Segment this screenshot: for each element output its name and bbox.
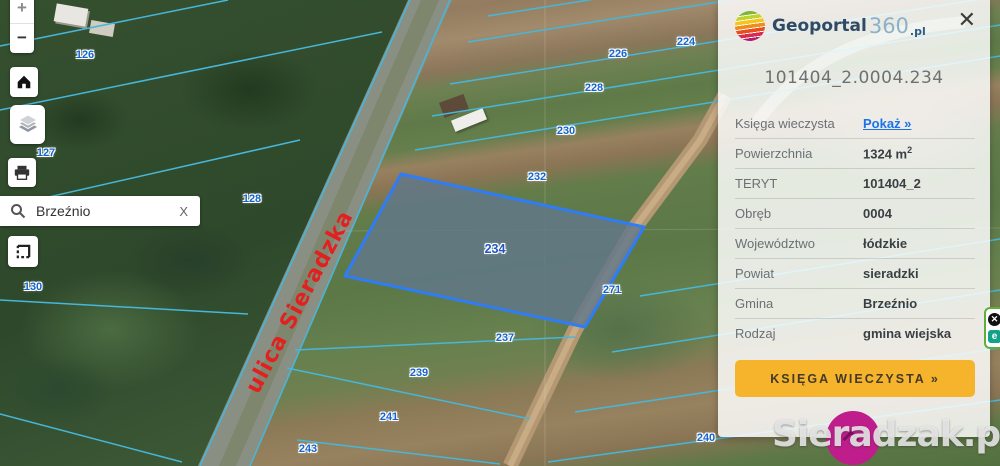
panel-row: Rodzajgmina wiejska xyxy=(735,318,975,348)
zoom-controls: + − xyxy=(10,0,34,53)
parcel-label-237[interactable]: 237 xyxy=(496,332,514,344)
parcel-label-241[interactable]: 241 xyxy=(380,411,398,423)
parcel-label-232[interactable]: 232 xyxy=(528,171,546,183)
attribute-label: Gmina xyxy=(735,296,863,311)
widget-e-icon[interactable]: e xyxy=(988,330,1000,343)
attribute-label: Księga wieczysta xyxy=(735,116,863,131)
panel-row: Księga wieczystaPokaż » xyxy=(735,108,975,138)
show-link[interactable]: Pokaż » xyxy=(863,116,911,131)
home-button[interactable] xyxy=(10,67,38,97)
parcel-label-226[interactable]: 226 xyxy=(609,48,627,60)
select-area-icon xyxy=(15,243,32,260)
parcel-label-126[interactable]: 126 xyxy=(76,49,94,61)
close-icon[interactable]: ✕ xyxy=(958,10,976,32)
globe-logo-icon xyxy=(733,9,767,43)
ksiega-wieczysta-button[interactable]: KSIĘGA WIECZYSTA » xyxy=(735,360,975,397)
search-clear-button[interactable]: X xyxy=(179,204,188,219)
panel-row: Powierzchnia1324 m2 xyxy=(735,138,975,168)
parcel-label-228[interactable]: 228 xyxy=(585,82,603,94)
printer-icon xyxy=(13,164,31,182)
parcel-label-230[interactable]: 230 xyxy=(557,125,575,137)
extension-widget: ✕ e xyxy=(984,307,1000,349)
widget-close-icon[interactable]: ✕ xyxy=(988,313,1000,326)
attribute-value: sieradzki xyxy=(863,266,919,281)
logo-text-360: 360 xyxy=(869,14,909,38)
parcel-label-128[interactable]: 128 xyxy=(243,193,261,205)
parcel-id-title: 101404_2.0004.234 xyxy=(718,68,990,88)
panel-row: TERYT101404_2 xyxy=(735,168,975,198)
parcel-label-127[interactable]: 127 xyxy=(37,147,55,159)
zoom-out-button[interactable]: − xyxy=(10,24,34,54)
logo-text: Geoportal xyxy=(772,16,867,36)
layers-button[interactable] xyxy=(10,105,45,144)
search-bar: X xyxy=(0,196,200,226)
zoom-in-button[interactable]: + xyxy=(10,0,34,24)
parcel-label-224[interactable]: 224 xyxy=(677,36,695,48)
home-icon xyxy=(15,73,33,91)
parcel-attribute-rows: Księga wieczystaPokaż »Powierzchnia1324 … xyxy=(735,108,975,348)
parcel-label-243[interactable]: 243 xyxy=(299,443,317,455)
attribute-value: 1324 m2 xyxy=(863,145,912,161)
select-area-button[interactable] xyxy=(8,236,38,267)
attribute-label: Powiat xyxy=(735,266,863,281)
attribute-value: łódzkie xyxy=(863,236,907,251)
panel-row: GminaBrzeźnio xyxy=(735,288,975,318)
attribute-value: gmina wiejska xyxy=(863,326,951,341)
parcel-label-271[interactable]: 271 xyxy=(603,284,621,296)
geoportal-logo: Geoportal 360 .pl xyxy=(735,11,926,41)
search-icon xyxy=(10,203,26,219)
attribute-label: Obręb xyxy=(735,206,863,221)
sieradzak-watermark: Sieradzak.pl xyxy=(772,414,1000,455)
logo-text-pl: .pl xyxy=(910,25,926,38)
parcel-label-234[interactable]: 234 xyxy=(485,242,506,256)
attribute-label: Powierzchnia xyxy=(735,146,863,161)
attribute-label: Rodzaj xyxy=(735,326,863,341)
parcel-label-239[interactable]: 239 xyxy=(410,367,428,379)
parcel-info-panel: Geoportal 360 .pl ✕ 101404_2.0004.234 Ks… xyxy=(718,0,990,437)
layers-icon xyxy=(16,113,40,137)
attribute-value: 0004 xyxy=(863,206,892,221)
attribute-value: 101404_2 xyxy=(863,176,921,191)
parcel-label-130[interactable]: 130 xyxy=(24,281,42,293)
panel-row: Województwołódzkie xyxy=(735,228,975,258)
parcel-label-240[interactable]: 240 xyxy=(697,432,715,444)
attribute-value: Brzeźnio xyxy=(863,296,917,311)
attribute-label: Województwo xyxy=(735,236,863,251)
attribute-label: TERYT xyxy=(735,176,863,191)
panel-row: Powiatsieradzki xyxy=(735,258,975,288)
geoportal-map-view: 1261271281302242262282302322342712372392… xyxy=(0,0,1000,466)
search-input[interactable] xyxy=(34,202,179,220)
print-button[interactable] xyxy=(8,158,36,187)
panel-row: Obręb0004 xyxy=(735,198,975,228)
